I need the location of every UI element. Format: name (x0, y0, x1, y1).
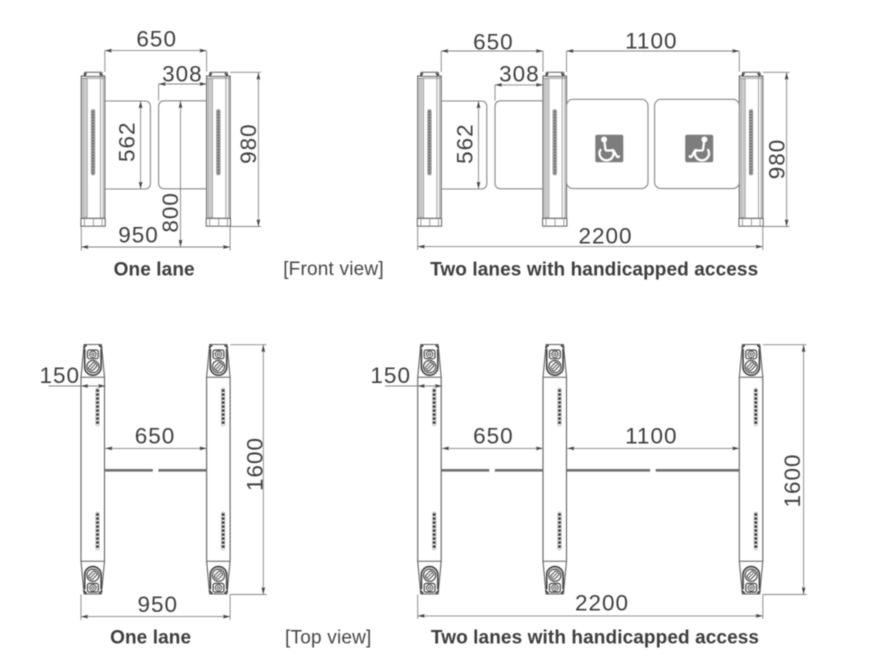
svg-text:Two lanes with handicapped acc: Two lanes with handicapped access (431, 627, 759, 648)
svg-text:Two lanes with handicapped acc: Two lanes with handicapped access (430, 260, 758, 281)
svg-text:1600: 1600 (242, 437, 267, 491)
svg-text:One lane: One lane (110, 627, 191, 648)
svg-text:1100: 1100 (625, 423, 677, 448)
svg-text:950: 950 (118, 223, 159, 248)
svg-text:980: 980 (765, 139, 790, 180)
svg-text:650: 650 (473, 423, 514, 448)
svg-text:308: 308 (162, 62, 203, 87)
svg-text:800: 800 (158, 192, 183, 233)
svg-text:562: 562 (452, 123, 477, 164)
svg-text:650: 650 (135, 424, 176, 449)
svg-text:[Front view]: [Front view] (283, 259, 384, 280)
svg-text:562: 562 (114, 121, 139, 162)
svg-text:2200: 2200 (575, 591, 629, 616)
svg-text:150: 150 (370, 363, 411, 388)
svg-text:[Top view]: [Top view] (285, 627, 371, 648)
svg-text:650: 650 (473, 29, 514, 54)
svg-text:1100: 1100 (625, 28, 677, 53)
svg-text:980: 980 (236, 123, 261, 164)
svg-text:One lane: One lane (114, 260, 195, 281)
svg-text:1600: 1600 (780, 453, 805, 507)
svg-text:950: 950 (138, 592, 179, 617)
svg-text:2200: 2200 (578, 224, 632, 249)
svg-text:308: 308 (499, 61, 540, 86)
svg-text:150: 150 (40, 363, 81, 388)
svg-text:650: 650 (136, 27, 177, 52)
